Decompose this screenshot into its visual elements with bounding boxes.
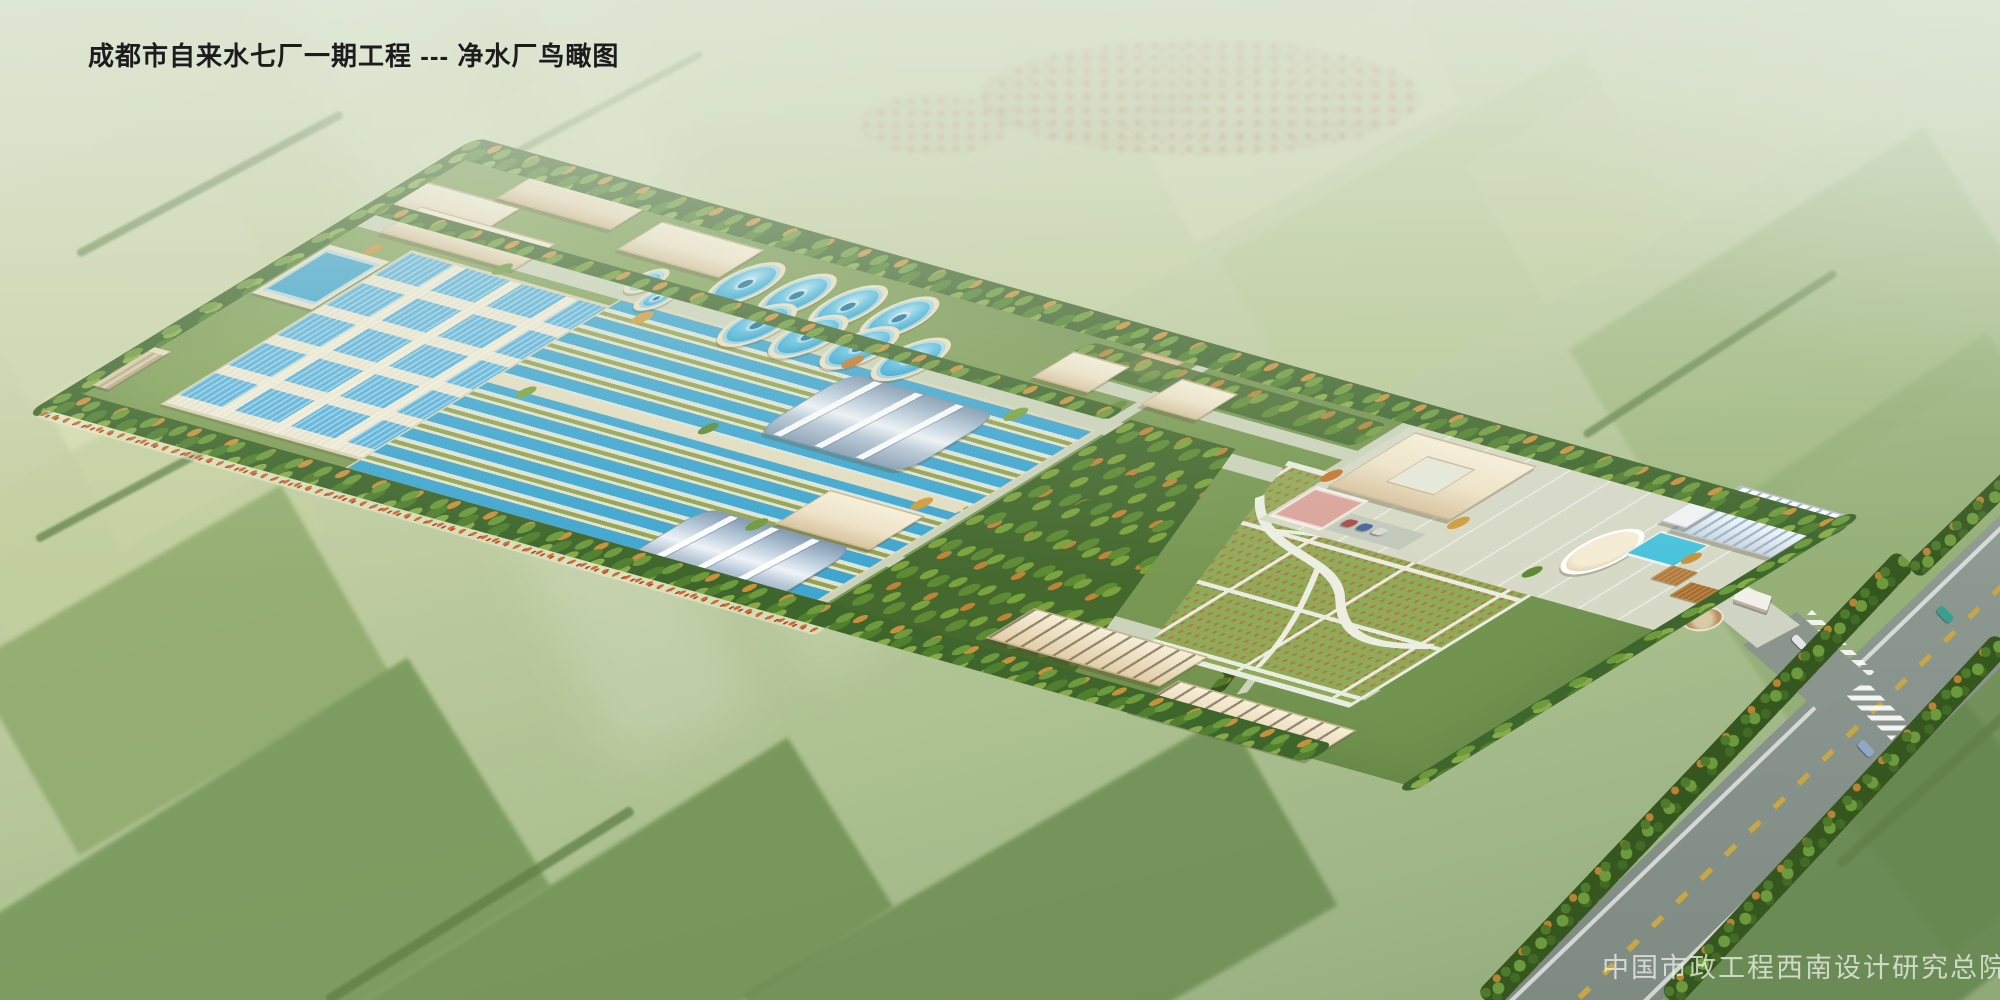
- village-cluster: [980, 40, 1420, 155]
- aerial-rendering: 成都市自来水七厂一期工程 --- 净水厂鸟瞰图 中国市政工程西南设计研究总院: [0, 0, 2000, 1000]
- page-title: 成都市自来水七厂一期工程 --- 净水厂鸟瞰图: [88, 36, 619, 73]
- watermark: 中国市政工程西南设计研究总院: [1602, 946, 2000, 985]
- village-cluster: [860, 95, 1010, 155]
